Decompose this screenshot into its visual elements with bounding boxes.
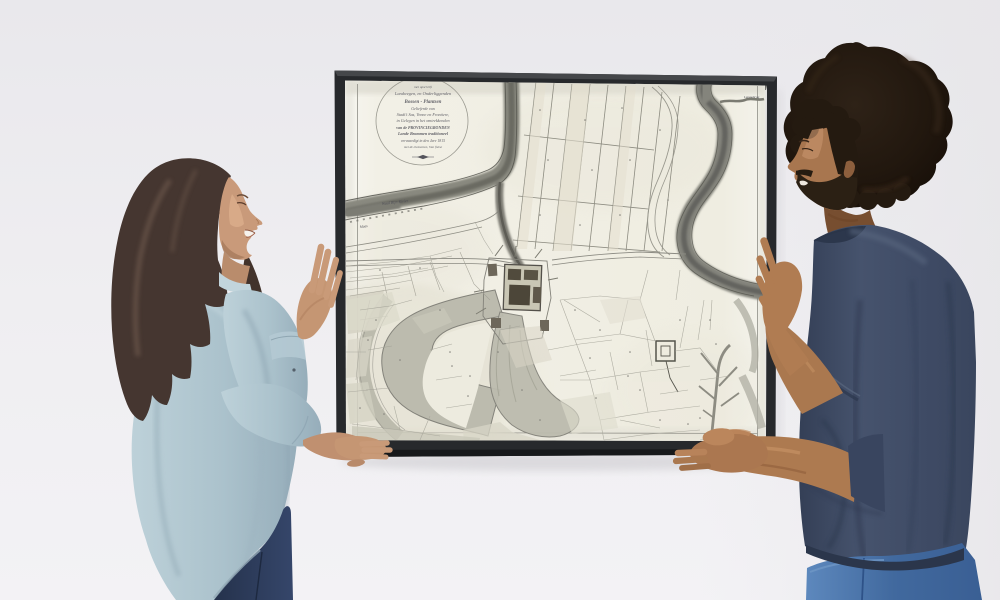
svg-text:vervaardigt in den Jare 1815: vervaardigt in den Jare 1815 bbox=[401, 139, 445, 143]
svg-text:in Gelegen in het omtrekkenden: in Gelegen in het omtrekkenden bbox=[396, 118, 449, 123]
svg-text:Gelieferde van: Gelieferde van bbox=[411, 106, 435, 111]
svg-text:van de PROVINCIEGRONDEN: van de PROVINCIEGRONDEN bbox=[396, 125, 451, 130]
svg-text:Bossen - Plantsen: Bossen - Plantsen bbox=[404, 100, 442, 105]
svg-text:met opschrift: met opschrift bbox=[414, 85, 433, 89]
svg-text:Leeuwbrug: Leeuwbrug bbox=[743, 95, 760, 99]
svg-text:Lande Brammen traditioneel: Lande Brammen traditioneel bbox=[397, 131, 449, 136]
